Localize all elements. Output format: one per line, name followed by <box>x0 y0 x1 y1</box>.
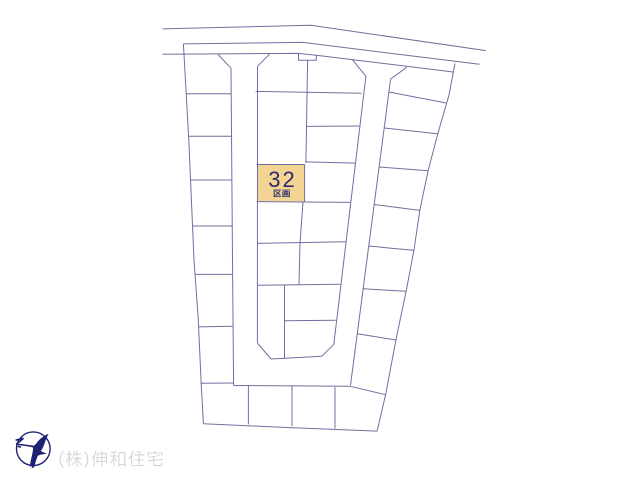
svg-text:32: 32 <box>268 167 296 192</box>
